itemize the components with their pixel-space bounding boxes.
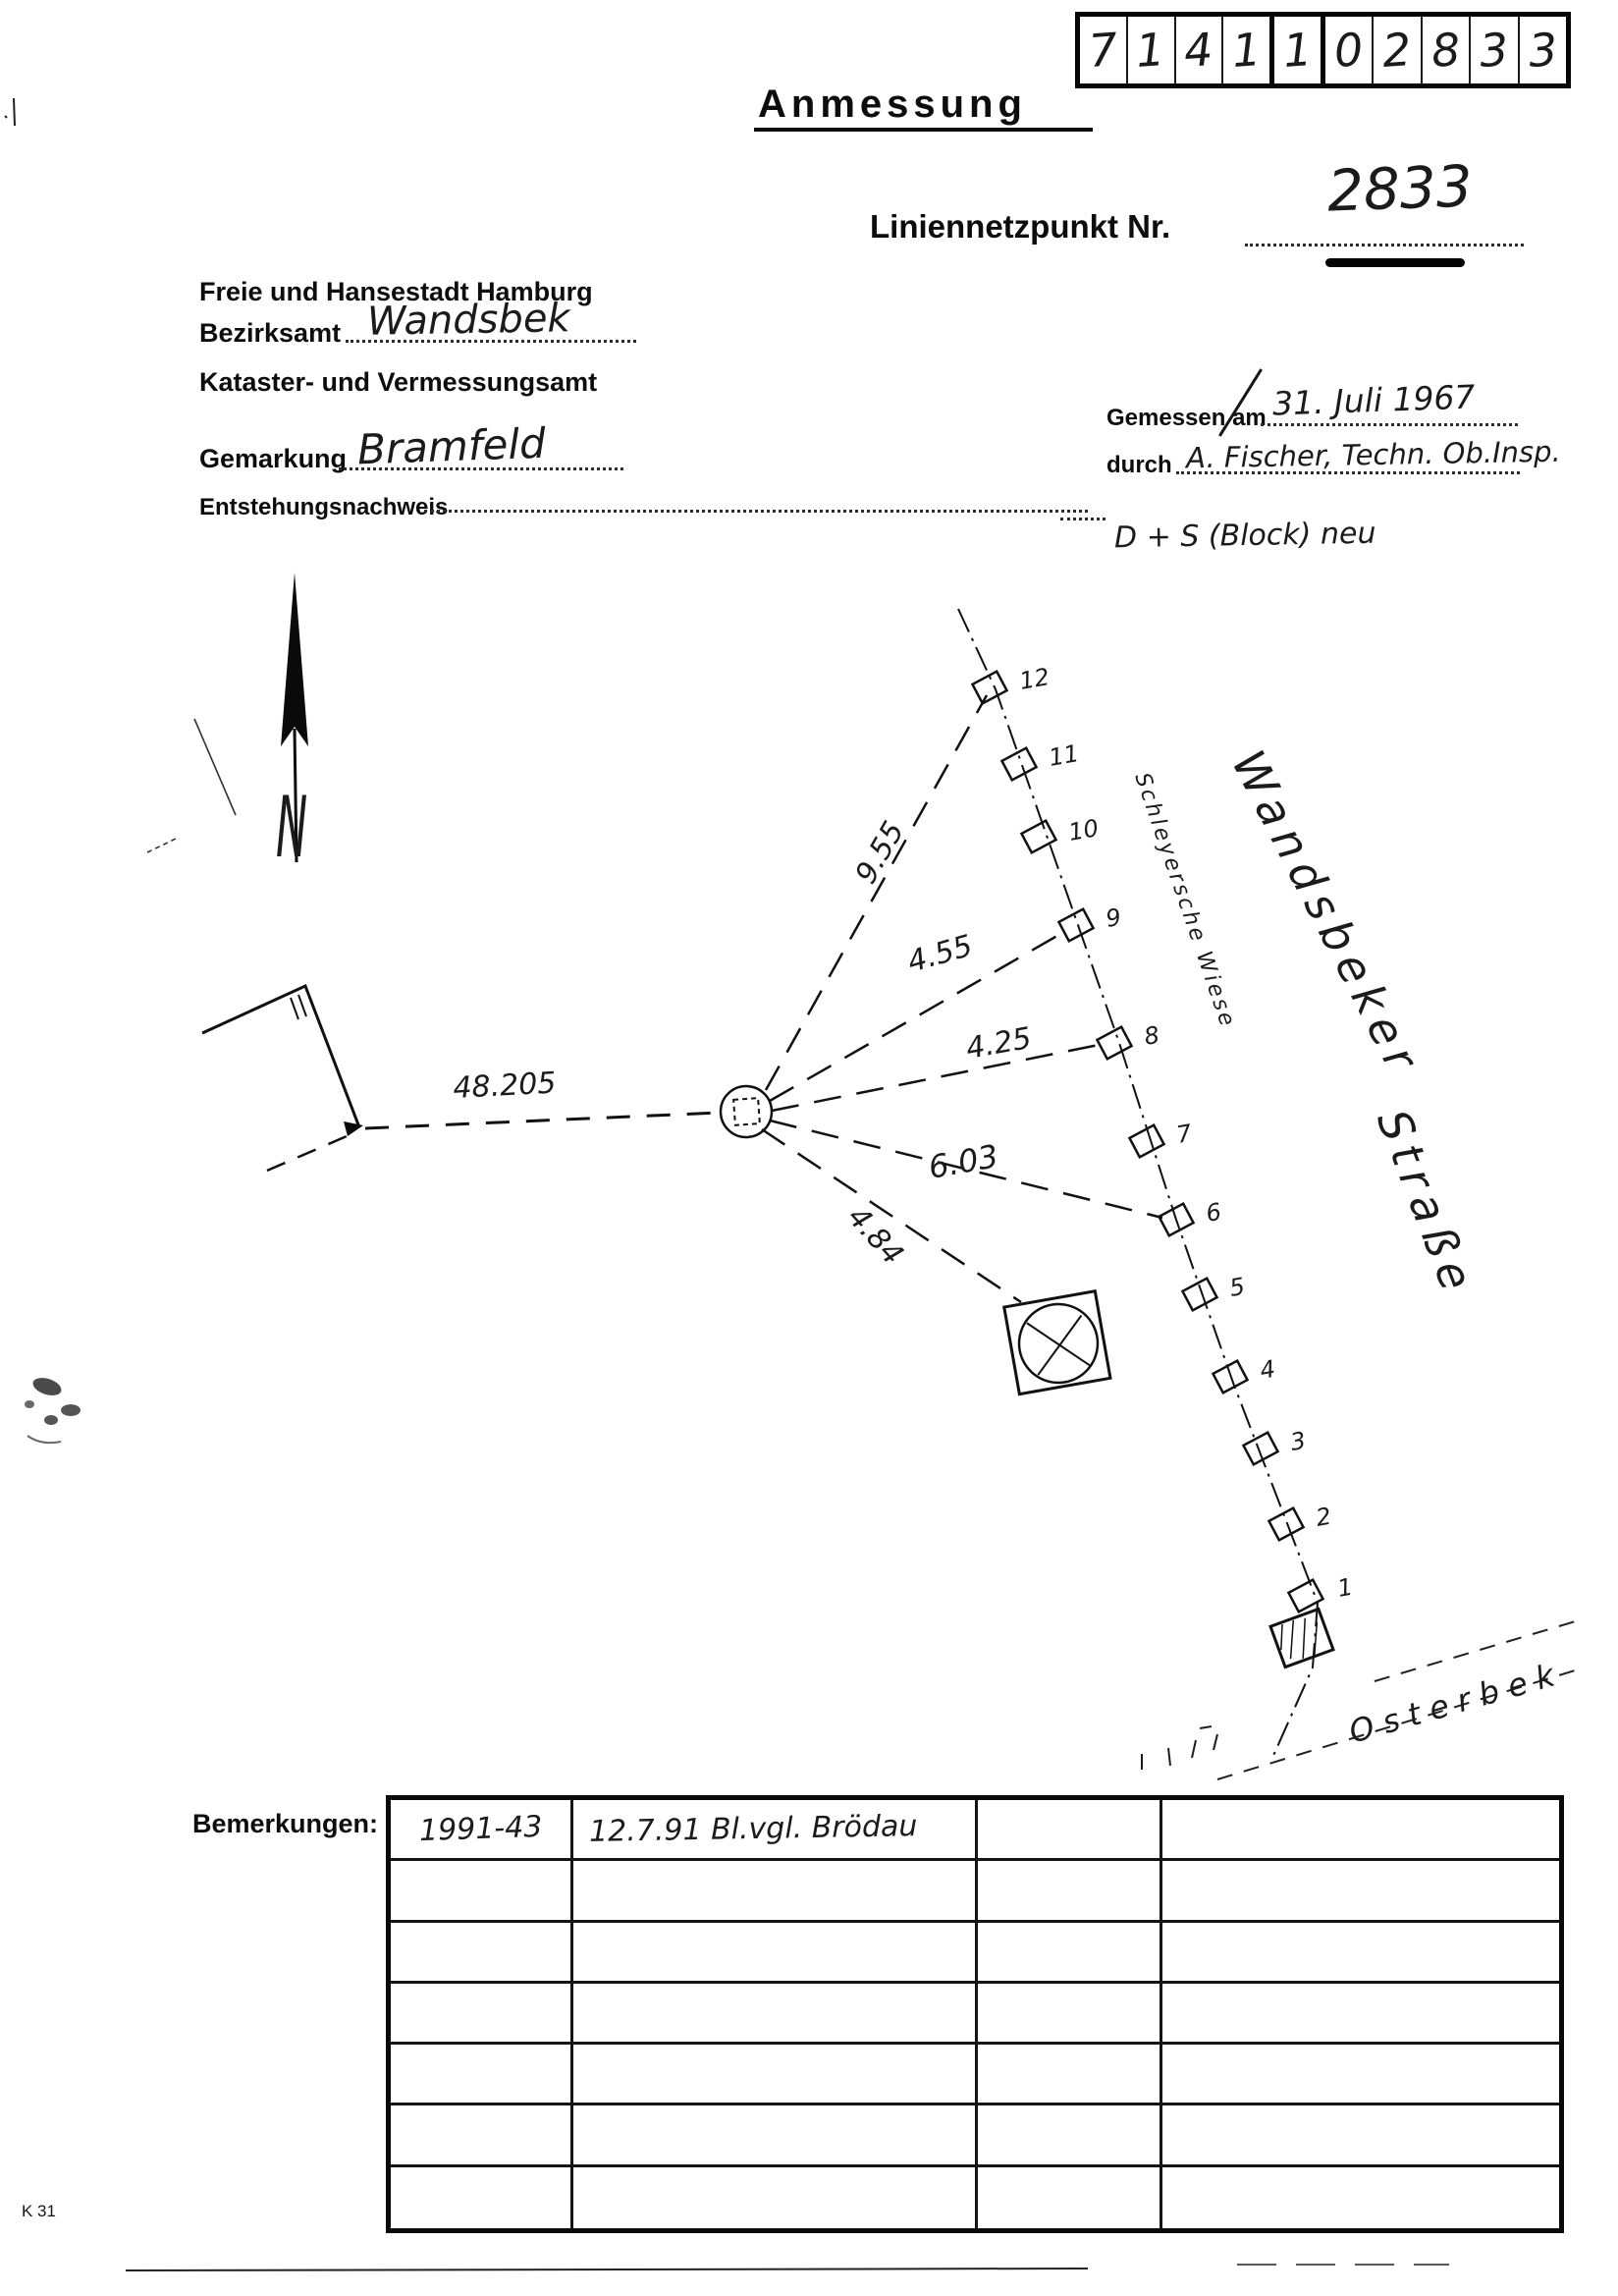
creek-name: Osterbek xyxy=(1345,1654,1569,1751)
svg-text:3: 3 xyxy=(1288,1427,1308,1456)
remarks-cell xyxy=(1162,1800,1559,1861)
north-letter: N xyxy=(276,780,307,878)
remarks-cell xyxy=(978,1923,1162,1984)
boundary-annotation: Schleyersche Wiese xyxy=(1129,770,1240,1032)
remarks-cell xyxy=(573,2167,978,2228)
scan-stray-lines xyxy=(147,719,236,852)
id-digit: 4 xyxy=(1182,23,1214,78)
remarks-cell xyxy=(1162,2045,1559,2105)
svg-text:5: 5 xyxy=(1227,1273,1247,1302)
remarks-label: Bemerkungen: xyxy=(192,1809,378,1839)
id-digit: 1 xyxy=(1135,23,1167,78)
form-code: K 31 xyxy=(22,2202,56,2221)
remarks-cell xyxy=(573,1984,978,2045)
north-arrow-icon: N xyxy=(276,573,308,878)
origin-dotted-line xyxy=(424,510,1088,513)
id-digit: 7 xyxy=(1087,23,1119,78)
svg-text:10: 10 xyxy=(1066,814,1101,847)
measured-on-value: 31. Juli 1967 xyxy=(1271,377,1476,422)
svg-text:11: 11 xyxy=(1047,739,1081,772)
remarks-cell xyxy=(573,2105,978,2166)
id-digit: 2 xyxy=(1381,23,1414,78)
remarks-cell xyxy=(978,2045,1162,2105)
street-name-line1: Wandsbeker xyxy=(1221,741,1431,1085)
remarks-cell xyxy=(391,1861,573,1922)
id-digit: 1 xyxy=(1281,23,1314,78)
svg-text:1: 1 xyxy=(1335,1573,1355,1603)
id-digit: 3 xyxy=(1527,23,1559,78)
building-corner-outline xyxy=(202,986,363,1136)
measured-on-dotted-line xyxy=(1261,423,1518,426)
scan-edge-lines xyxy=(126,2265,1449,2270)
distance-label-building: 48.205 xyxy=(453,1066,558,1106)
id-digit: 0 xyxy=(1332,23,1365,78)
remarks-table: 1991-43 12.7.91 Bl.vgl. Brödau xyxy=(386,1795,1564,2233)
district-label: Bezirksamt xyxy=(199,318,341,349)
remarks-cell xyxy=(573,1861,978,1922)
point-number-label: Liniennetzpunkt Nr. xyxy=(870,208,1170,246)
tick-marks xyxy=(1142,1726,1217,1770)
origin-dotted-fragment xyxy=(1060,518,1106,520)
scan-smudge xyxy=(25,1375,81,1443)
title-underline xyxy=(754,128,1093,132)
measured-by-label: durch xyxy=(1106,452,1172,479)
svg-text:2: 2 xyxy=(1314,1503,1333,1532)
id-digit: 3 xyxy=(1478,23,1510,78)
svg-text:12: 12 xyxy=(1017,663,1052,695)
svg-text:9: 9 xyxy=(1104,903,1123,933)
distance-label-p8: 4.25 xyxy=(963,1021,1034,1066)
remarks-cell xyxy=(1162,2105,1559,2166)
measured-by-value: A. Fischer, Techn. Ob.Insp. xyxy=(1186,435,1561,475)
remarks-value: 1991-43 xyxy=(418,1810,543,1848)
point-number-heavy-underline xyxy=(1325,258,1465,267)
scan-artifact-marks xyxy=(5,98,15,126)
scanned-survey-form: N 48.205 xyxy=(0,0,1618,2296)
street-name-line2: Straße xyxy=(1367,1103,1486,1305)
point-number-dotted-line xyxy=(1245,244,1524,246)
remarks-cell xyxy=(573,1923,978,1984)
remarks-cell xyxy=(391,1923,573,1984)
monument-symbol xyxy=(1270,1609,1333,1667)
svg-text:7: 7 xyxy=(1174,1120,1195,1149)
remarks-cell xyxy=(1162,1923,1559,1984)
remarks-cell xyxy=(1162,1984,1559,2045)
remarks-cell xyxy=(978,1800,1162,1861)
district-value: Wandsbek xyxy=(367,296,570,345)
point-id-boxes: 7 1 4 1 1 0 2 8 3 3 xyxy=(1075,12,1571,88)
building-corner-point xyxy=(344,1121,363,1136)
point-number-value: 2833 xyxy=(1326,152,1474,224)
remarks-cell xyxy=(978,2105,1162,2166)
measured-on-label: Gemessen am xyxy=(1106,405,1267,432)
svg-text:8: 8 xyxy=(1142,1021,1161,1051)
remarks-cell: 1991-43 xyxy=(391,1800,573,1861)
distance-label-manhole: 4.84 xyxy=(840,1200,910,1272)
remarks-cell xyxy=(1162,2167,1559,2228)
id-group-2: 1 xyxy=(1269,17,1321,83)
agency-office: Kataster- und Vermessungsamt xyxy=(199,367,597,398)
remarks-cell: 12.7.91 Bl.vgl. Brödau xyxy=(573,1800,978,1861)
baseline-to-building xyxy=(267,1113,720,1171)
remarks-cell xyxy=(391,2167,573,2228)
remarks-cell xyxy=(573,2045,978,2105)
gemarkung-value: Bramfeld xyxy=(356,419,546,474)
remarks-cell xyxy=(391,2105,573,2166)
remarks-cell xyxy=(978,2167,1162,2228)
id-digit: 8 xyxy=(1429,23,1462,78)
remarks-value: 12.7.91 Bl.vgl. Brödau xyxy=(589,1809,918,1849)
remarks-cell xyxy=(978,1861,1162,1922)
remarks-cell xyxy=(1162,1861,1559,1922)
form-title: Anmessung xyxy=(758,82,1027,127)
distance-label-p12: 9.55 xyxy=(849,816,912,890)
manhole-symbol xyxy=(1004,1291,1110,1394)
remarks-cell xyxy=(978,1984,1162,2045)
svg-text:4: 4 xyxy=(1258,1355,1277,1385)
point-number-labels: 12 11 10 9 8 7 6 5 4 3 2 1 xyxy=(1017,663,1355,1603)
gemarkung-label: Gemarkung xyxy=(199,444,347,474)
measurement-note: D + S (Block) neu xyxy=(1114,517,1376,556)
id-group-3: 0 2 8 3 3 xyxy=(1321,17,1566,83)
remarks-cell xyxy=(391,2045,573,2105)
remarks-cell xyxy=(391,1984,573,2045)
distance-label-p9: 4.55 xyxy=(904,929,977,980)
id-group-1: 7 1 4 1 xyxy=(1080,17,1269,83)
svg-text:6: 6 xyxy=(1204,1198,1223,1228)
id-digit: 1 xyxy=(1230,23,1263,78)
measurement-rays xyxy=(762,695,1162,1302)
origin-label: Entstehungsnachweis xyxy=(199,494,448,521)
distance-label-p6: 6.03 xyxy=(926,1137,1001,1186)
